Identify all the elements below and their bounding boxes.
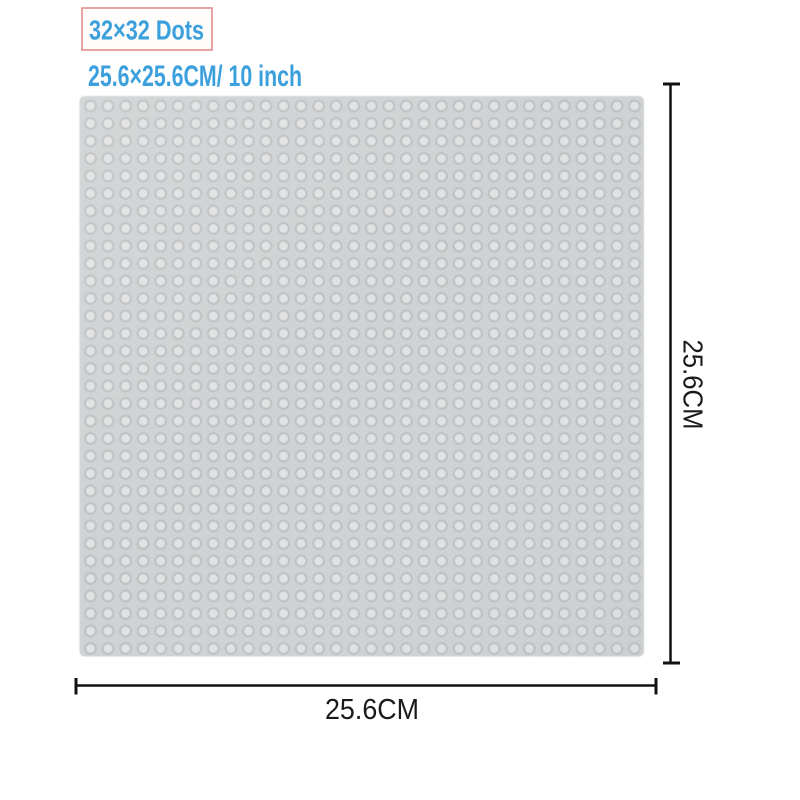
svg-text:32×32 Dots: 32×32 Dots (89, 15, 204, 46)
svg-text:25.6CM: 25.6CM (325, 694, 419, 726)
svg-text:25.6CM: 25.6CM (678, 340, 709, 430)
svg-text:25.6×25.6CM/ 10 inch: 25.6×25.6CM/ 10 inch (88, 60, 302, 93)
